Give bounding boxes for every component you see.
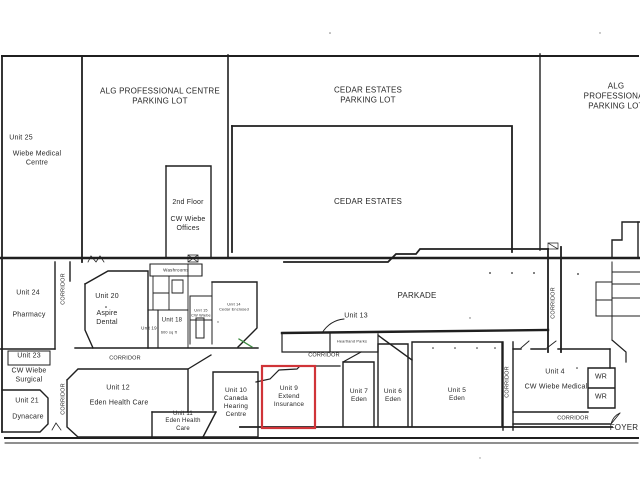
unit-13-label: Unit 13: [344, 313, 368, 322]
corridor-label-4: CORRIDOR: [61, 383, 68, 415]
corridor-label-1: CORRIDOR: [61, 273, 68, 305]
lot-alg-right-label: ALG PROFESSIONAL PARKING LOT: [584, 81, 640, 110]
unit-21-number: Unit 21: [15, 398, 39, 407]
unit-10-label: Unit 10 Canada Hearing Centre: [224, 387, 248, 419]
wr-label-1: WR: [595, 374, 607, 383]
unit-20-label: Unit 20 Aspire Dental: [95, 293, 119, 327]
corridor-label-3: CORRIDOR: [308, 353, 340, 360]
corridor-label-7: CORRIDOR: [557, 416, 589, 423]
unit-19-label: Unit 19: [141, 325, 157, 330]
unit-4-number: Unit 4: [545, 369, 565, 378]
unit-24-name: Pharmacy: [12, 312, 45, 321]
unit-18-area: 600 sq ft: [161, 331, 177, 336]
unit-12-name: Eden Health Care: [90, 400, 149, 409]
unit-12-number: Unit 12: [106, 385, 130, 394]
lot-alg-left-label: ALG PROFESSIONAL CENTRE PARKING LOT: [100, 86, 220, 106]
unit-18-label: Unit 18: [162, 317, 182, 324]
unit-5-label: Unit 5 Eden: [448, 387, 466, 403]
unit-23-name: CW Wiebe Surgical: [11, 367, 46, 384]
unit-9-label: Unit 9 Extend Insurance: [274, 385, 304, 409]
corridor-label-5: CORRIDOR: [551, 287, 558, 319]
unit-15-label: Unit 15 CW Wiebe: [191, 308, 211, 317]
parkade-label: PARKADE: [397, 291, 436, 301]
cedar-estates-label: CEDAR ESTATES: [334, 197, 402, 207]
wr-label-2: WR: [595, 394, 607, 403]
unit-23-number: Unit 23: [17, 353, 41, 362]
unit-7-label: Unit 7 Eden: [350, 388, 368, 404]
unit-6-label: Unit 6 Eden: [384, 388, 402, 404]
second-floor-label: 2nd Floor CW Wiebe Offices: [170, 199, 205, 233]
foyer-label: FOYER: [610, 423, 639, 433]
unit-4-name: CW Wiebe Medical: [525, 384, 588, 393]
unit-25-name: Wiebe Medical Centre: [13, 150, 62, 167]
unit-11-label: Unit 11 Eden Health Care: [165, 411, 200, 433]
heartland-parks-label: Heartland Parks: [337, 340, 367, 345]
corridor-label-6: CORRIDOR: [505, 366, 512, 398]
corridor-label-2: CORRIDOR: [109, 356, 141, 363]
washrooms-label: Washrooms: [163, 267, 189, 272]
unit-21-name: Dynacare: [12, 414, 44, 423]
lot-cedar-label: CEDAR ESTATES PARKING LOT: [334, 85, 402, 105]
unit-14-label: Unit 14 Cedar Enclosed: [219, 302, 249, 311]
floorplan-page: ALG PROFESSIONAL CENTRE PARKING LOT CEDA…: [0, 0, 640, 480]
unit-24-number: Unit 24: [16, 290, 40, 299]
unit-25-number: Unit 25: [9, 135, 33, 144]
